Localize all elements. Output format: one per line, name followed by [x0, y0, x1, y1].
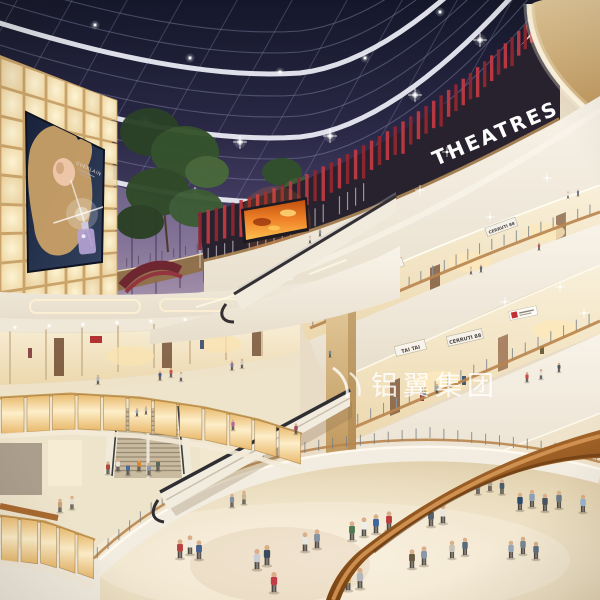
watermark-text: 铝翼集团 — [371, 371, 499, 402]
rendering-canvas: THEATRES TAI TAI CERRUTI 88 — [0, 0, 600, 600]
vignette — [0, 0, 600, 600]
mall-atrium-rendering: THEATRES TAI TAI CERRUTI 88 — [0, 0, 600, 600]
